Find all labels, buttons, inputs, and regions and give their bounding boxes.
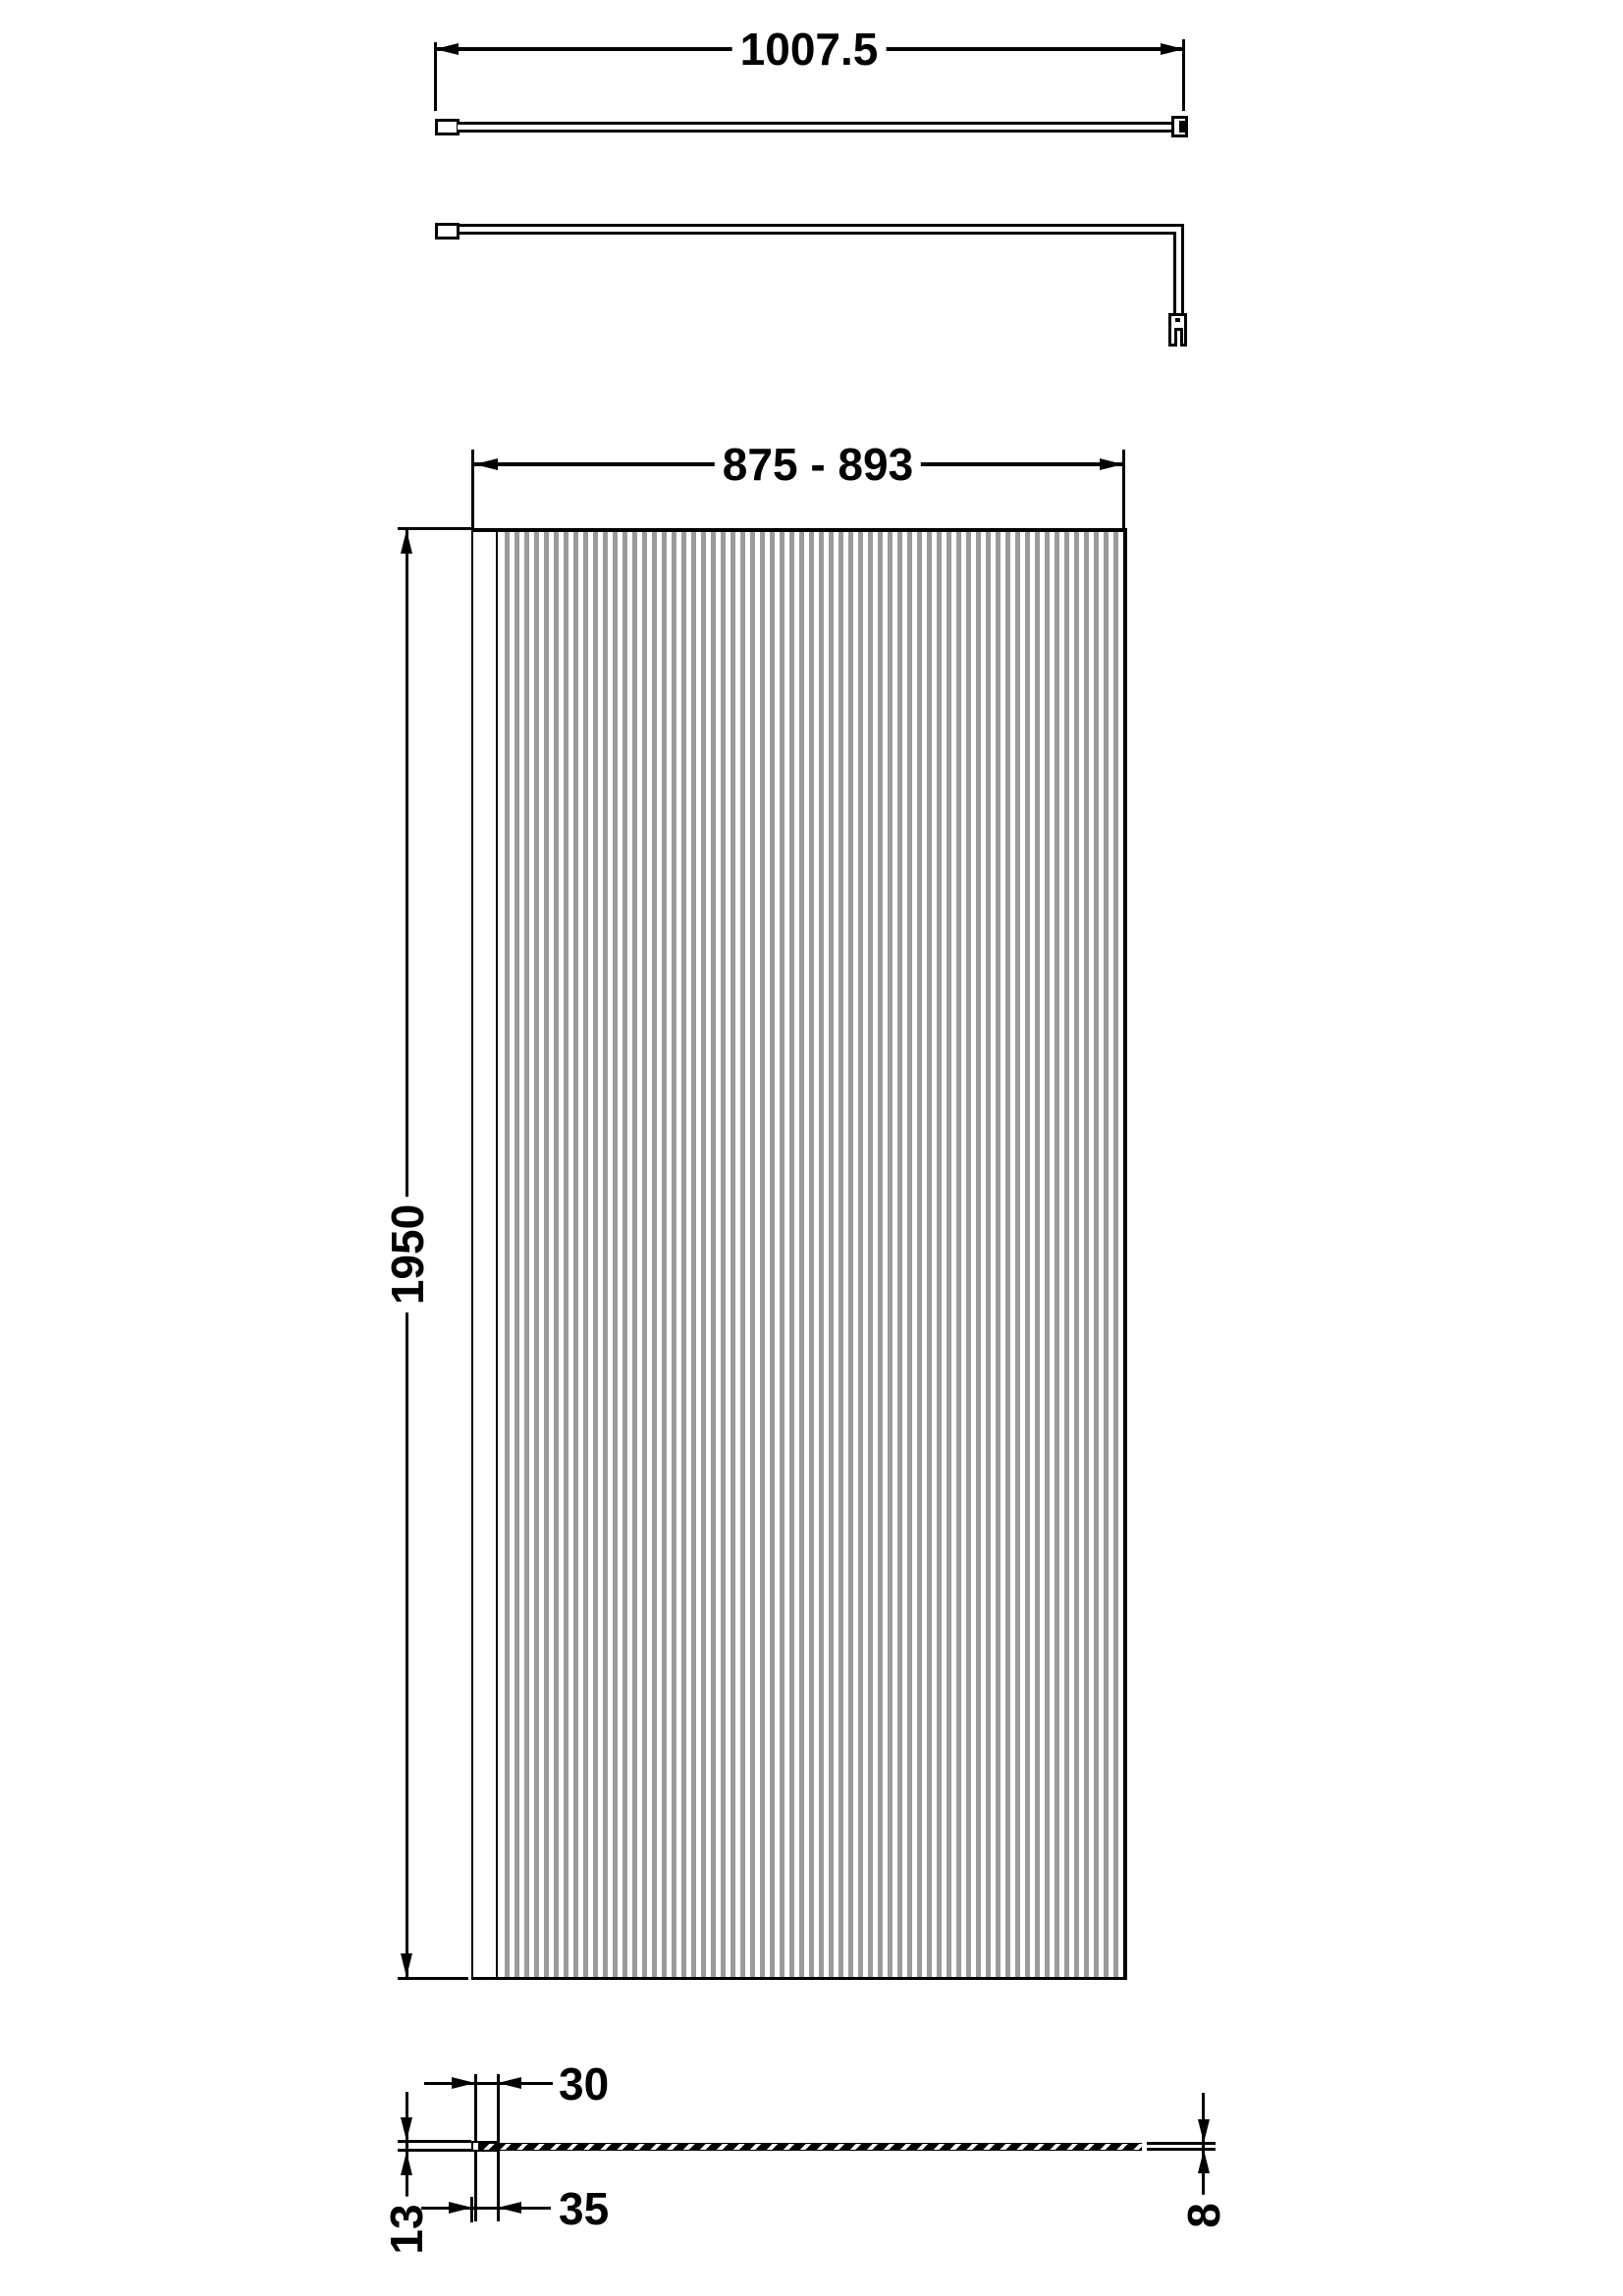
section-glass	[478, 2143, 1142, 2151]
wall-fixing-block	[435, 119, 460, 135]
arrowhead-up-icon	[401, 2152, 412, 2175]
clamp-slot	[1174, 328, 1183, 347]
technical-drawing-canvas: 1007.5 875 - 893 1950	[0, 0, 1623, 2296]
dimension-line	[406, 2092, 408, 2202]
arrowhead-left-icon	[435, 43, 459, 55]
profile-outer-width-label: 35	[555, 2184, 613, 2233]
arm-bottom-edge	[458, 232, 1176, 235]
screen-width-label: 875 - 893	[715, 440, 921, 489]
screen-height-label: 1950	[383, 1197, 432, 1312]
wall-fixing-block	[435, 223, 460, 240]
arm-top-edge	[458, 224, 1184, 227]
support-arm-tube	[458, 122, 1171, 133]
glass-thickness-label: 8	[1179, 2195, 1228, 2236]
bracket-end-cap	[1179, 121, 1185, 133]
arm-bend-inner-edge	[1173, 232, 1176, 315]
arrowhead-right-icon	[1100, 458, 1123, 470]
arrowhead-down-icon	[1198, 2119, 1210, 2143]
arrowhead-down-icon	[401, 1953, 412, 1977]
arrowhead-left-icon	[474, 458, 498, 470]
arrowhead-left-icon	[498, 2202, 521, 2214]
arm-bend-outer-edge	[1181, 224, 1184, 315]
arrowhead-up-icon	[1198, 2150, 1210, 2173]
dimension-line	[424, 2082, 553, 2085]
profile-inner-width-label: 30	[555, 2059, 613, 2109]
extension-tick-bottom	[398, 1977, 468, 1980]
arrowhead-right-icon	[449, 2202, 472, 2214]
arrowhead-down-icon	[401, 2117, 412, 2141]
arrowhead-up-icon	[401, 530, 412, 554]
arm-length-label: 1007.5	[732, 25, 887, 74]
arrowhead-right-icon	[1161, 43, 1184, 55]
wall-profile-strip	[473, 532, 498, 1977]
dimension-line	[421, 2207, 551, 2210]
arrowhead-right-icon	[452, 2077, 475, 2089]
fluted-glass	[500, 532, 1123, 1977]
screen-panel	[471, 528, 1127, 1980]
dimension-line	[1202, 2093, 1205, 2202]
glass-bracket	[1171, 116, 1188, 137]
arrowhead-left-icon	[498, 2077, 521, 2089]
clamp-screw-icon	[1175, 318, 1180, 322]
